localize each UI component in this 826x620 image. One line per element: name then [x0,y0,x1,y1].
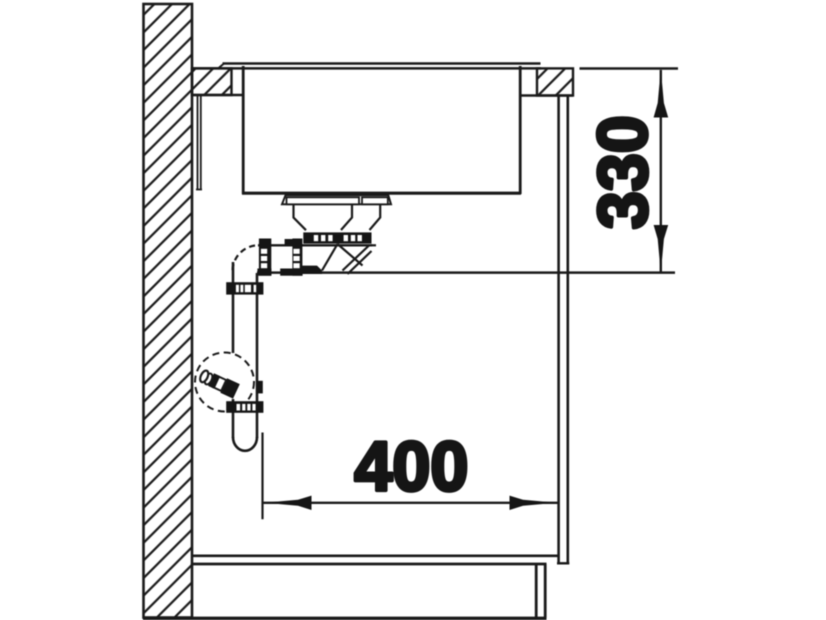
svg-text:400: 400 [354,428,468,506]
svg-text:330: 330 [583,115,661,229]
